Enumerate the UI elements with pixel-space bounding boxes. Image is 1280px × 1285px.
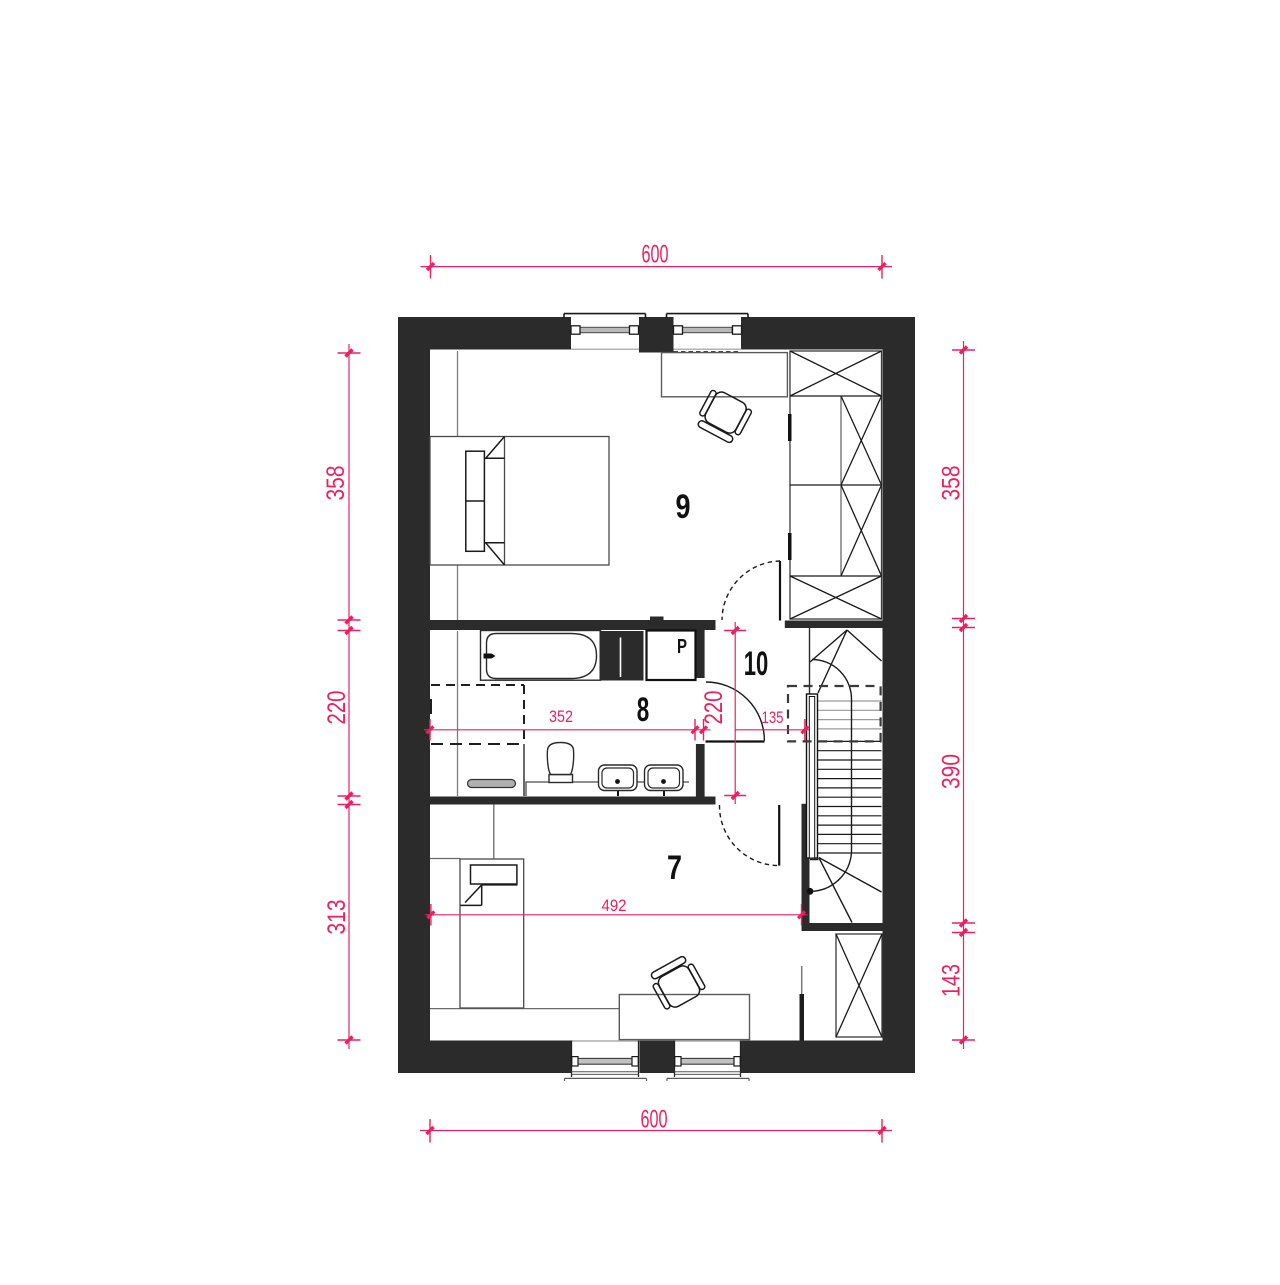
svg-text:358: 358: [322, 466, 350, 501]
svg-text:600: 600: [641, 1106, 668, 1134]
svg-text:358: 358: [938, 466, 966, 501]
svg-text:135: 135: [762, 708, 784, 727]
svg-text:8: 8: [637, 691, 650, 729]
svg-text:313: 313: [323, 900, 351, 935]
svg-text:352: 352: [549, 707, 573, 726]
svg-text:9: 9: [676, 488, 691, 526]
svg-text:10: 10: [744, 645, 769, 683]
svg-text:220: 220: [700, 691, 728, 725]
svg-text:390: 390: [938, 754, 966, 789]
svg-text:7: 7: [667, 849, 682, 887]
svg-text:143: 143: [938, 964, 966, 997]
svg-text:220: 220: [323, 691, 351, 725]
svg-text:492: 492: [602, 896, 627, 915]
svg-text:600: 600: [642, 241, 669, 269]
svg-text:P: P: [677, 636, 687, 658]
